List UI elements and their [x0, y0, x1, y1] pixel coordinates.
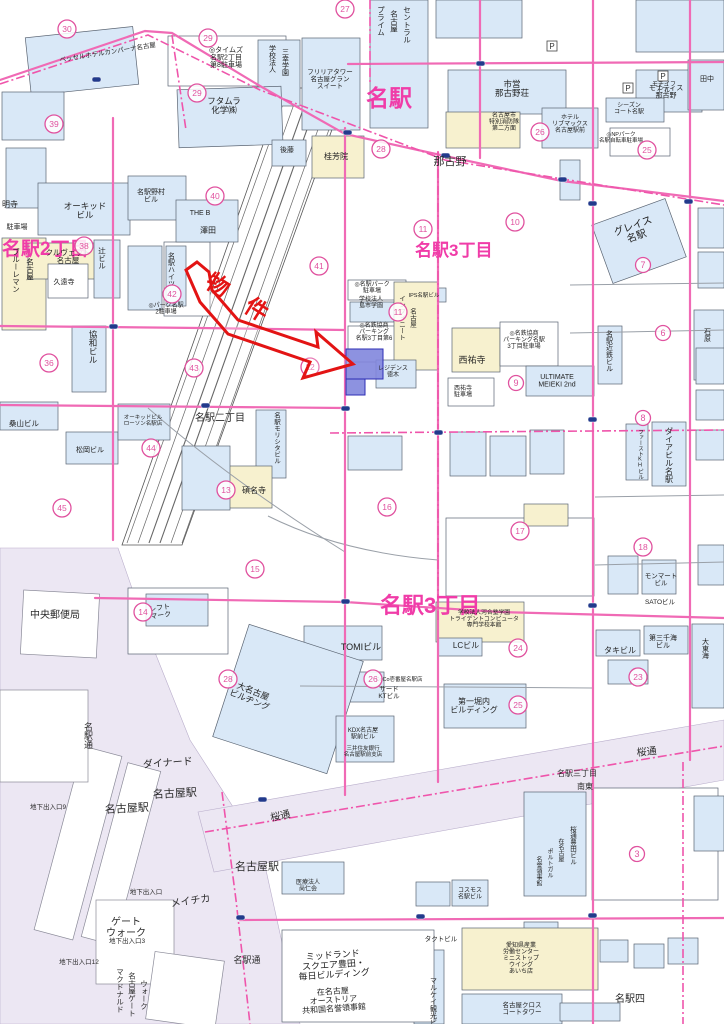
street-label: 名駅通 [83, 721, 93, 750]
circled-number: 25 [638, 141, 656, 159]
circled-number: 9 [509, 376, 524, 391]
building-label: 澤田 [200, 225, 216, 235]
svg-text:26: 26 [535, 127, 545, 137]
circled-number: 24 [509, 639, 527, 657]
circled-number: 3 [630, 847, 645, 862]
building-label: 駐車場 [7, 222, 28, 231]
building-label: LCビル [453, 641, 479, 650]
street-label: 地下出入口3 [109, 936, 146, 945]
svg-text:28: 28 [376, 144, 386, 154]
circled-number: 10 [506, 213, 524, 231]
building-label: 名駅ハイツ [168, 251, 176, 287]
building-label: ミッドランドスクエア豊田・毎日ビルディング [297, 948, 370, 982]
circled-number: 44 [142, 439, 160, 457]
svg-text:23: 23 [633, 672, 643, 682]
building-label: IPS名駅ビル [409, 291, 440, 299]
building-label: 石原 [704, 328, 712, 342]
building-label: TOMIビル [341, 642, 381, 652]
street-label: 名駅四 [615, 992, 645, 1005]
building-label: 名古屋 [389, 9, 398, 34]
svg-text:P: P [660, 72, 665, 81]
street-label: 名駅二丁目 [195, 411, 245, 424]
building-label: 学校法人 [269, 44, 277, 73]
svg-text:26: 26 [368, 674, 378, 684]
svg-text:P: P [625, 84, 630, 93]
svg-text:13: 13 [221, 485, 231, 495]
building-label: ◎名鉄協商パーキング名駅3丁目第6 [356, 321, 393, 342]
svg-text:10: 10 [510, 217, 520, 227]
parking-p-mark: P [658, 71, 668, 81]
svg-text:18: 18 [638, 542, 648, 552]
svg-text:38: 38 [79, 241, 89, 251]
building-label: 名誉領事館 [535, 855, 542, 887]
circled-number: 7 [636, 258, 651, 273]
building-label: オーキッドビルローソン名駅店 [124, 413, 163, 427]
building-label: 三井住友銀行名古屋駅前支店 [344, 744, 383, 758]
building-label: ULTIMATEMEIEKI 2nd [538, 374, 575, 389]
circled-number: 25 [509, 696, 527, 714]
building-label: 学校法人島市学園 [359, 295, 383, 309]
street-label: ゲートウォーク [106, 916, 146, 939]
building-label: ダイアビル名駅 [665, 426, 674, 484]
building-label: タクトビル [425, 934, 458, 943]
circled-number: 18 [634, 538, 652, 556]
circled-number: 29 [188, 84, 206, 102]
circled-number: 26 [531, 123, 549, 141]
street-label: 地下出入口9 [30, 802, 67, 811]
circled-number: 6 [656, 326, 671, 341]
svg-text:11: 11 [419, 224, 428, 234]
building-label: マルケイ観光ビル [430, 977, 438, 1024]
circled-number: 42 [163, 285, 181, 303]
circled-number: 26 [364, 670, 382, 688]
building-label: 碩名寺 [242, 485, 266, 495]
svg-text:17: 17 [515, 526, 525, 536]
circled-number: 8 [636, 411, 651, 426]
svg-text:42: 42 [167, 289, 177, 299]
circled-number: 40 [206, 187, 224, 205]
circled-number: 13 [217, 481, 235, 499]
svg-text:29: 29 [192, 88, 202, 98]
circled-number: 15 [246, 560, 264, 578]
building-label: 名駅近鉄ビル [606, 329, 614, 372]
street-label: 名古屋駅 [235, 859, 279, 873]
street-label: 地下出入口12 [59, 957, 99, 966]
building-label: コスモス名駅ビル [458, 887, 482, 900]
circled-number: 28 [219, 670, 237, 688]
svg-text:43: 43 [189, 363, 199, 373]
circled-number: 17 [511, 522, 529, 540]
circled-number: 39 [45, 115, 63, 133]
circled-number: 38 [75, 237, 93, 255]
street-label: ウォーク [139, 980, 148, 1011]
svg-text:36: 36 [44, 358, 54, 368]
street-label: 名駅三丁目 [557, 768, 597, 778]
building-label: ファーストKHビル [637, 429, 644, 480]
building-label: フタムラ化学㈱ [207, 96, 241, 115]
street-label: 地下出入口 [130, 887, 163, 896]
building-label: サードKTビル [378, 685, 400, 700]
svg-text:8: 8 [640, 413, 645, 423]
svg-text:25: 25 [642, 145, 652, 155]
building-label: 松岡ビル [76, 445, 104, 454]
building-label: 西祐寺駐車場 [454, 384, 472, 398]
building-label: 西祐寺 [458, 354, 485, 365]
building-label: 明寺 [2, 200, 18, 209]
circled-number: 29 [199, 29, 217, 47]
building-label: 在名古屋 [557, 837, 564, 863]
building-label: 医療法人尚仁会 [296, 878, 320, 892]
building-label: 後藤 [280, 145, 294, 154]
svg-text:9: 9 [513, 378, 518, 388]
svg-text:14: 14 [138, 607, 148, 617]
svg-text:7: 7 [640, 260, 645, 270]
street-label: 名古屋ゲート [127, 971, 136, 1017]
building-label: タキビル [604, 646, 636, 655]
circled-number: 11 [389, 303, 407, 321]
svg-text:3: 3 [634, 849, 639, 859]
svg-text:25: 25 [513, 700, 523, 710]
street-label: マクドナルド [115, 968, 124, 1013]
parking-p-mark: P [623, 83, 633, 93]
parking-p-mark: P [547, 41, 557, 51]
building-label: 名古屋 [25, 257, 34, 282]
building-label: 大東海 [702, 637, 710, 660]
building-label: 田中 [700, 74, 714, 83]
building-label: 久遠寺 [54, 277, 75, 286]
building-label: SATOビル [645, 597, 676, 606]
svg-text:41: 41 [314, 261, 324, 271]
street-label: 南東 [577, 781, 593, 791]
svg-text:27: 27 [340, 4, 350, 14]
building-label: 桑山ビル [9, 418, 39, 428]
building-label: シーズンコート名駅 [614, 101, 644, 115]
svg-text:39: 39 [49, 119, 59, 129]
svg-text:15: 15 [250, 564, 260, 574]
circled-number: 43 [185, 359, 203, 377]
building-label: KDX名古屋駅前ビル [348, 726, 378, 740]
svg-text:16: 16 [382, 502, 392, 512]
building-label: プライム [376, 6, 385, 37]
street-label: 那古野 [434, 155, 467, 168]
building-label: 辻ビル [97, 246, 106, 270]
building-label: ポルトガル [546, 848, 553, 878]
circled-number: 16 [378, 498, 396, 516]
building-label: 協和ビル [88, 329, 98, 364]
building-label: 名古屋クロスコートタワー [503, 1000, 542, 1016]
building-label: THE B [190, 210, 211, 217]
circled-number: 28 [372, 140, 390, 158]
svg-text:11: 11 [394, 307, 403, 317]
circled-number: 27 [336, 0, 354, 18]
svg-text:45: 45 [57, 503, 67, 513]
residential-map: PPP 名駅2丁目名駅名駅3丁目名駅3丁目那古野名駅二丁目桜通桜通名駅通名駅通中… [0, 0, 724, 1024]
circled-number: 14 [134, 603, 152, 621]
district-label: 名駅3丁目 [415, 240, 492, 260]
svg-text:P: P [549, 42, 554, 51]
street-label: 中央郵便局 [30, 608, 80, 621]
map-canvas: PPP 名駅2丁目名駅名駅3丁目名駅3丁目那古野名駅二丁目桜通桜通名駅通名駅通中… [0, 0, 724, 1024]
svg-text:29: 29 [203, 33, 213, 43]
building-label: セントラル [402, 6, 411, 44]
building-label: 名古屋市特別消防隊第二方面 [489, 111, 519, 132]
building-label: 三幸学園 [282, 48, 290, 77]
building-label: ◎タイムズ名駅2丁目第8駐車場 [209, 45, 243, 69]
circled-number: 23 [629, 668, 647, 686]
street-label: 名駅通 [233, 954, 260, 965]
circled-number: 11 [414, 220, 432, 238]
circled-number: 45 [53, 499, 71, 517]
svg-text:40: 40 [210, 191, 220, 201]
circled-number: 30 [58, 20, 76, 38]
svg-text:28: 28 [223, 674, 233, 684]
building-label: 桂芳院 [324, 151, 348, 161]
svg-text:30: 30 [62, 24, 72, 34]
svg-text:6: 6 [660, 328, 665, 338]
circled-number: 41 [310, 257, 328, 275]
svg-text:24: 24 [513, 643, 523, 653]
svg-text:44: 44 [146, 443, 156, 453]
district-label: 名駅 [366, 85, 412, 111]
building-label: ブルーレマン [11, 247, 20, 293]
circled-number: 36 [40, 354, 58, 372]
